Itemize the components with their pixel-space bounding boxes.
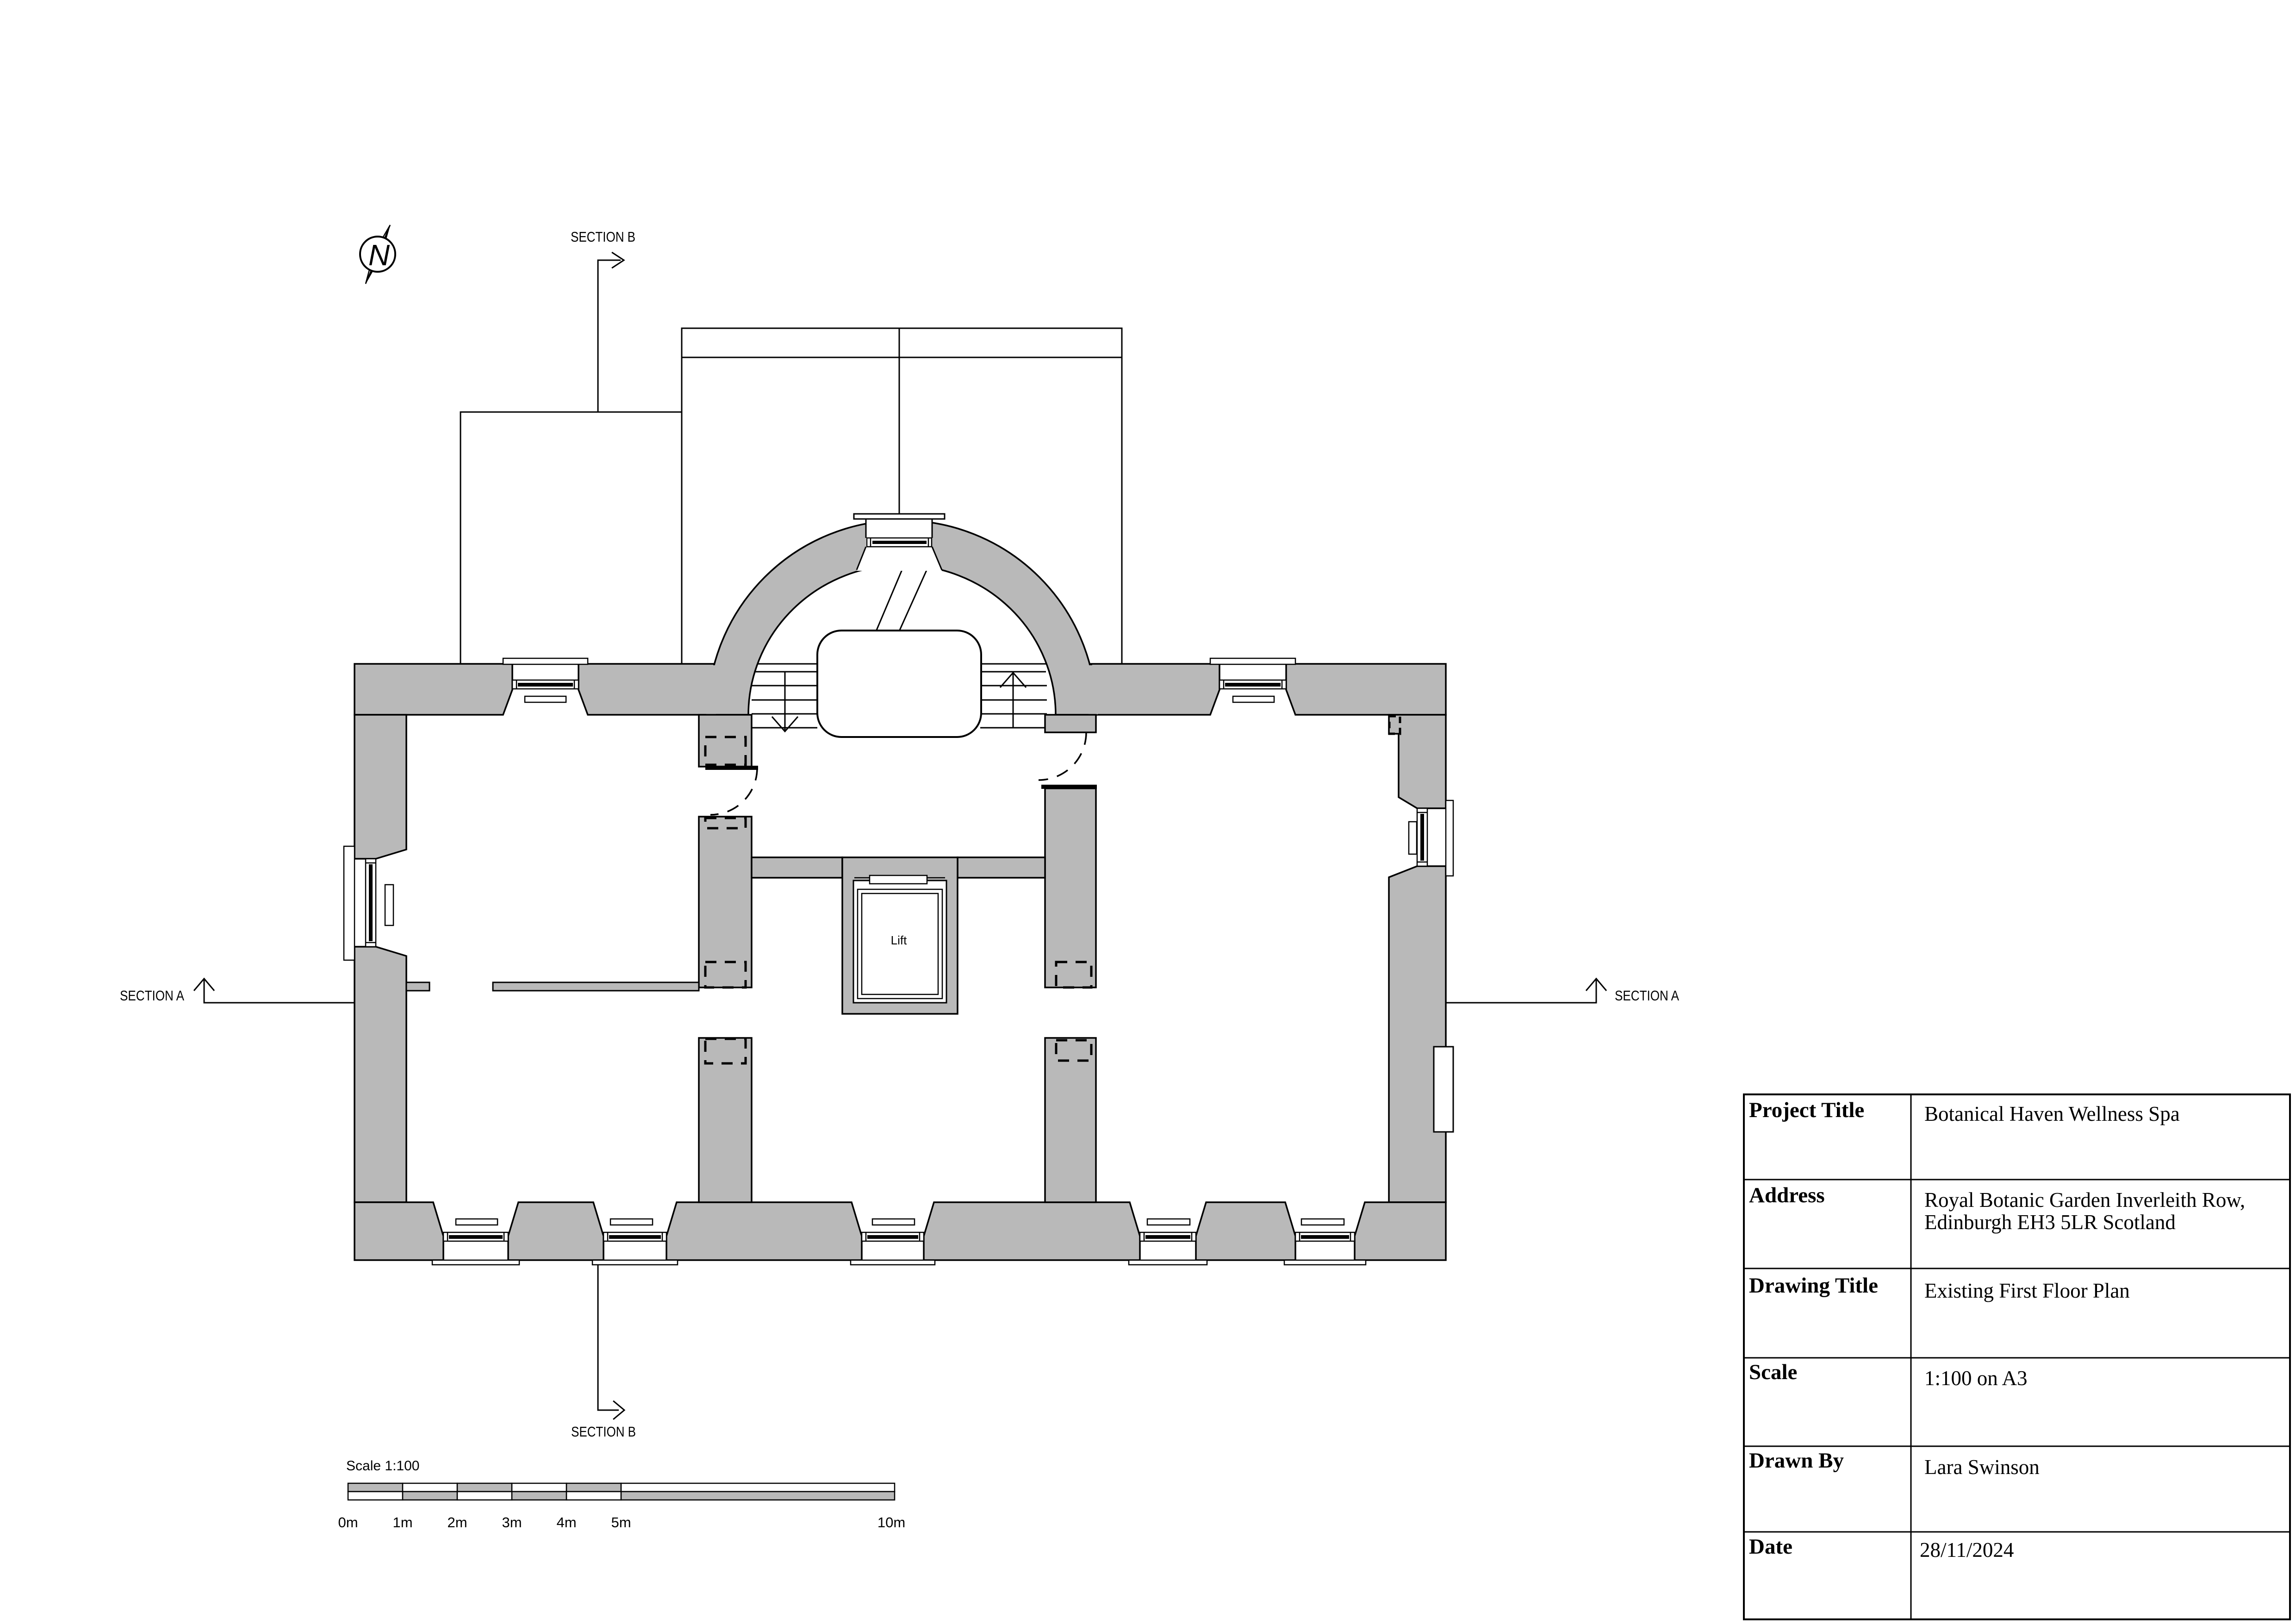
- svg-text:Royal Botanic Garden Inverleit: Royal Botanic Garden Inverleith Row,: [1924, 1188, 2245, 1212]
- svg-text:28/11/2024: 28/11/2024: [1920, 1538, 2014, 1562]
- svg-text:Lift: Lift: [891, 933, 907, 947]
- svg-text:10m: 10m: [877, 1514, 905, 1530]
- svg-text:4m: 4m: [556, 1514, 576, 1530]
- svg-text:Drawing Title: Drawing Title: [1749, 1274, 1878, 1298]
- svg-text:Edinburgh EH3 5LR Scotland: Edinburgh EH3 5LR Scotland: [1924, 1211, 2176, 1234]
- svg-text:1:100 on A3: 1:100 on A3: [1924, 1367, 2028, 1390]
- svg-text:Project Title: Project Title: [1749, 1098, 1864, 1122]
- svg-text:Scale: Scale: [1749, 1360, 1797, 1384]
- svg-text:Date: Date: [1749, 1535, 1792, 1559]
- svg-text:Lara Swinson: Lara Swinson: [1924, 1455, 2040, 1479]
- svg-text:SECTION A: SECTION A: [120, 987, 184, 1004]
- svg-text:SECTION A: SECTION A: [1615, 987, 1679, 1004]
- svg-text:SECTION B: SECTION B: [571, 229, 635, 245]
- svg-text:1m: 1m: [392, 1514, 412, 1530]
- svg-text:Existing First Floor Plan: Existing First Floor Plan: [1924, 1279, 2130, 1302]
- svg-text:5m: 5m: [611, 1514, 631, 1530]
- svg-text:N: N: [368, 238, 390, 272]
- svg-text:0m: 0m: [338, 1514, 358, 1530]
- svg-text:Scale 1:100: Scale 1:100: [346, 1458, 419, 1474]
- svg-text:SECTION B: SECTION B: [571, 1424, 636, 1440]
- svg-text:Address: Address: [1749, 1183, 1825, 1207]
- svg-text:Botanical Haven Wellness Spa: Botanical Haven Wellness Spa: [1924, 1102, 2180, 1125]
- svg-text:2m: 2m: [447, 1514, 467, 1530]
- svg-text:3m: 3m: [502, 1514, 522, 1530]
- svg-text:Drawn By: Drawn By: [1749, 1449, 1844, 1473]
